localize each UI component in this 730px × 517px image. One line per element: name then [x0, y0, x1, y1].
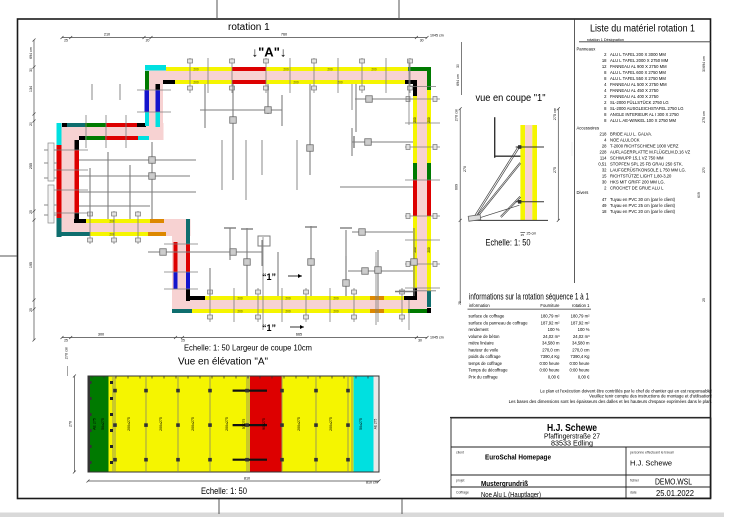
svg-text:30: 30	[456, 64, 460, 68]
svg-text:34,580 m: 34,580 m	[572, 341, 590, 346]
svg-text:20: 20	[29, 122, 33, 126]
svg-text:218: 218	[600, 131, 608, 136]
svg-text:Tuyau en PVC 30 cm (par le cli: Tuyau en PVC 30 cm (par le client)	[610, 197, 676, 202]
svg-text:0,00 €: 0,00 €	[578, 374, 590, 379]
svg-text:12: 12	[602, 64, 607, 69]
svg-text:180,79 m²: 180,79 m²	[541, 314, 560, 319]
svg-text:810: 810	[244, 477, 250, 481]
svg-text:Vue en élévation "A": Vue en élévation "A"	[178, 356, 268, 368]
svg-text:810 cm: 810 cm	[366, 481, 378, 485]
svg-text:Accessoires: Accessoires	[577, 125, 600, 130]
svg-text:609: 609	[455, 184, 459, 190]
svg-text:rotation 1: rotation 1	[228, 22, 270, 33]
svg-text:200x275: 200x275	[297, 417, 301, 431]
svg-text:Tuyau en PVC 25 cm (par le cli: Tuyau en PVC 25 cm (par le client)	[610, 203, 676, 208]
svg-text:ALU L AE-WINKEL 100 X 2750 MM: ALU L AE-WINKEL 100 X 2750 MM	[610, 118, 677, 123]
svg-text:volume de béton: volume de béton	[469, 334, 501, 339]
svg-text:Echelle: 1: 50: Echelle: 1: 50	[486, 238, 531, 248]
svg-text:30: 30	[420, 39, 424, 43]
svg-text:270 cm: 270 cm	[455, 109, 459, 121]
svg-text:200x275: 200x275	[329, 417, 333, 431]
svg-text:ANGLE INTERIEUR AL I 300 X 275: ANGLE INTERIEUR AL I 300 X 2750	[610, 112, 679, 117]
svg-text:18: 18	[602, 58, 607, 63]
svg-text:25: 25	[64, 339, 68, 343]
svg-text:0,00 €: 0,00 €	[548, 374, 560, 379]
svg-text:200: 200	[293, 81, 299, 85]
svg-text:0:00 heure: 0:00 heure	[569, 361, 590, 366]
svg-text:PANNEAU AL 900 X 2750 MM: PANNEAU AL 900 X 2750 MM	[610, 64, 667, 69]
svg-text:T-2000 RICHTSCHIENE 1000 VERZ: T-2000 RICHTSCHIENE 1000 VERZ	[610, 143, 679, 148]
svg-text:228: 228	[600, 149, 608, 154]
svg-text:Liste du matériel rotation 1: Liste du matériel rotation 1	[590, 23, 695, 34]
svg-text:NOE ALULOCK: NOE ALULOCK	[610, 137, 640, 142]
svg-text:134: 134	[29, 86, 33, 92]
svg-text:PANNEAU AL 450 X 2750: PANNEAU AL 450 X 2750	[610, 88, 659, 93]
svg-text:200: 200	[285, 310, 291, 314]
svg-text:32: 32	[602, 167, 607, 172]
svg-text:AE 275: AE 275	[93, 418, 97, 430]
svg-text:EuroSchal Homepage: EuroSchal Homepage	[485, 453, 551, 462]
svg-text:poids du coffrage: poids du coffrage	[469, 354, 502, 359]
svg-text:30: 30	[418, 339, 422, 343]
svg-text:surface de coffrage: surface de coffrage	[469, 314, 505, 319]
svg-text:50x275: 50x275	[242, 419, 246, 430]
svg-text:25: 25	[702, 298, 706, 302]
svg-text:200: 200	[371, 68, 377, 72]
svg-text:mètre linéaire: mètre linéaire	[469, 341, 495, 346]
svg-text:200: 200	[285, 297, 291, 301]
svg-text:AUFLAGERPLATTE M.FLÜGELM.D.16: AUFLAGERPLATTE M.FLÜGELM.D.16 VZ	[610, 149, 691, 154]
svg-text:760: 760	[281, 33, 287, 37]
svg-text:200: 200	[283, 68, 289, 72]
svg-text:665: 665	[296, 333, 302, 337]
svg-text:24,02 m³: 24,02 m³	[573, 334, 590, 339]
svg-text:200: 200	[237, 310, 243, 314]
svg-text:RICHTSTÜTZE LIGHT 1,80-3,20: RICHTSTÜTZE LIGHT 1,80-3,20	[610, 173, 672, 178]
svg-text:34,580 m: 34,580 m	[542, 341, 560, 346]
svg-text:ALU L TAFEL 600 X 2750 MM: ALU L TAFEL 600 X 2750 MM	[610, 70, 666, 75]
svg-text:STOPFEN SPL 25 FB GRAU 250 STK: STOPFEN SPL 25 FB GRAU 250 STK.	[610, 161, 683, 166]
svg-text:25.01.2022: 25.01.2022	[656, 489, 695, 498]
svg-text:Prix du coffrage: Prix du coffrage	[469, 374, 499, 379]
svg-text:0:00 heure: 0:00 heure	[539, 368, 560, 373]
svg-text:surface du panneau de coffrage: surface du panneau de coffrage	[469, 320, 529, 325]
svg-text:200x275: 200x275	[159, 417, 163, 431]
svg-text:50x275: 50x275	[359, 418, 363, 430]
svg-text:180,79 m²: 180,79 m²	[571, 314, 590, 319]
svg-text:275: 275	[553, 167, 557, 173]
svg-text:694 cm: 694 cm	[456, 74, 460, 86]
svg-text:195: 195	[29, 262, 33, 268]
svg-text:25: 25	[29, 210, 33, 214]
svg-text:25: 25	[64, 39, 68, 43]
svg-text:609: 609	[697, 192, 701, 198]
svg-text:275 cm: 275 cm	[553, 108, 557, 120]
svg-text:30: 30	[602, 179, 607, 184]
svg-text:rotation 1 Désignation: rotation 1 Désignation	[587, 38, 624, 42]
svg-text:49: 49	[602, 203, 607, 208]
svg-text:↓"A"↓: ↓"A"↓	[252, 45, 287, 60]
svg-text:50x275: 50x275	[101, 418, 105, 430]
svg-text:1045 cm: 1045 cm	[430, 336, 444, 340]
svg-text:270 cm: 270 cm	[65, 347, 69, 359]
svg-text:25: 25	[458, 301, 462, 305]
svg-text:25: 25	[29, 308, 33, 312]
svg-text:24,02 m³: 24,02 m³	[543, 334, 560, 339]
svg-text:SCHWUPP 15,1 VZ 750 MM: SCHWUPP 15,1 VZ 750 MM	[610, 155, 664, 160]
svg-text:H.J. Schewe: H.J. Schewe	[630, 459, 672, 468]
svg-text:83533 Edling: 83533 Edling	[551, 439, 593, 448]
svg-text:PANNEAU AL 400 X 2750: PANNEAU AL 400 X 2750	[610, 94, 659, 99]
svg-text:Echelle: 1: 50: Echelle: 1: 50	[201, 486, 247, 496]
svg-text:AE 275: AE 275	[374, 419, 378, 430]
svg-text:694 cm: 694 cm	[702, 56, 706, 68]
svg-text:270,0 cm: 270,0 cm	[572, 347, 590, 352]
svg-text:Les bases des dimensions sont: Les bases des dimensions sont les épaiss…	[509, 399, 712, 404]
svg-text:“1”: “1”	[262, 323, 276, 333]
svg-text:Temps de décoffrage: Temps de décoffrage	[469, 368, 509, 373]
svg-text:114: 114	[600, 155, 607, 160]
svg-text:Echelle: 1: 50 Largeur de co: Echelle: 1: 50 Largeur de coupe 10cm	[184, 343, 312, 353]
svg-text:200: 200	[333, 297, 339, 301]
svg-text:200x275: 200x275	[127, 417, 131, 431]
svg-text:7390,4 Kg: 7390,4 Kg	[570, 354, 590, 359]
svg-text:BRIDE ALU L. GALVA.: BRIDE ALU L. GALVA.	[610, 131, 652, 136]
svg-text:255: 255	[29, 163, 33, 169]
svg-text:20: 20	[146, 39, 150, 43]
svg-text:SL-2000 AUSGLEICHSTAFEL 2750 L: SL-2000 AUSGLEICHSTAFEL 2750 LG	[610, 106, 684, 111]
svg-text:28: 28	[602, 143, 607, 148]
svg-text:rendement: rendement	[469, 327, 490, 332]
svg-text:7390,4 Kg: 7390,4 Kg	[540, 354, 560, 359]
svg-text:200: 200	[413, 117, 417, 123]
svg-text:Mustergrundriß: Mustergrundriß	[481, 479, 528, 488]
svg-text:694 cm: 694 cm	[29, 47, 33, 59]
svg-text:210: 210	[104, 33, 110, 37]
svg-text:0:00 heure: 0:00 heure	[539, 361, 560, 366]
svg-text:DEMO.WSL: DEMO.WSL	[655, 478, 692, 487]
svg-text:187,92 m²: 187,92 m²	[541, 320, 560, 325]
svg-text:date: date	[630, 491, 637, 495]
svg-text:200x275: 200x275	[191, 417, 195, 431]
svg-text:270,0 cm: 270,0 cm	[542, 347, 560, 352]
svg-text:270 cm: 270 cm	[702, 111, 706, 123]
svg-text:200: 200	[333, 310, 339, 314]
svg-text:hauteur de voile: hauteur de voile	[469, 347, 499, 352]
svg-text:25: 25	[521, 233, 525, 237]
svg-text:270: 270	[69, 421, 73, 427]
svg-text:0:00 heure: 0:00 heure	[569, 368, 590, 373]
svg-text:personne effectuant le travail: personne effectuant le travail	[630, 451, 674, 455]
svg-text:200: 200	[327, 68, 333, 72]
svg-text:200x275: 200x275	[225, 417, 229, 431]
svg-text:fichier: fichier	[630, 479, 640, 483]
svg-text:270: 270	[463, 166, 467, 172]
svg-text:HKS MIT GRIFF 200 MM LG.: HKS MIT GRIFF 200 MM LG.	[610, 179, 665, 184]
svg-text:200: 200	[193, 68, 199, 72]
svg-text:SL-2000 FÜLLSTÜCK 2750 LG: SL-2000 FÜLLSTÜCK 2750 LG	[610, 100, 669, 105]
svg-text:CROCHET DE GRUE ALU L: CROCHET DE GRUE ALU L	[610, 185, 664, 190]
svg-text:“1”: “1”	[262, 272, 276, 282]
svg-text:Panneaux: Panneaux	[577, 47, 597, 52]
svg-text:client: client	[456, 451, 464, 455]
svg-text:1045 cm: 1045 cm	[430, 34, 444, 38]
svg-text:rotation 1: rotation 1	[572, 303, 590, 308]
svg-text:Veuillez tenir compte des inst: Veuillez tenir compte des instructions d…	[589, 394, 712, 399]
svg-text:Coffrage: Coffrage	[456, 491, 469, 495]
svg-text:200: 200	[193, 81, 199, 85]
svg-text:30: 30	[29, 68, 33, 72]
svg-text:0,51: 0,51	[598, 161, 607, 166]
svg-text:Noe Alu L (Hauptlager): Noe Alu L (Hauptlager)	[481, 492, 541, 499]
svg-text:informations sur la rotation: informations sur la rotation séquence 1 …	[469, 292, 589, 303]
svg-text:90x275: 90x275	[262, 418, 266, 430]
svg-text:projet: projet	[456, 479, 465, 483]
svg-text:270: 270	[702, 167, 706, 173]
svg-text:temps de coffrage: temps de coffrage	[469, 361, 503, 366]
svg-text:ALU L TAFEL 200 X 3000 MM: ALU L TAFEL 200 X 3000 MM	[610, 52, 666, 57]
svg-text:LAUFGERÜSTKONSOLE L 750 MM LG.: LAUFGERÜSTKONSOLE L 750 MM LG.	[610, 167, 686, 172]
svg-text:100 %: 100 %	[548, 327, 560, 332]
svg-text:PANNEAU AL 500 X 2750 MM: PANNEAU AL 500 X 2750 MM	[610, 82, 667, 87]
svg-text:ALU L TAFEL 2000 X 2750 MM: ALU L TAFEL 2000 X 2750 MM	[610, 58, 669, 63]
svg-text:25 cm: 25 cm	[527, 232, 537, 236]
svg-text:300: 300	[98, 333, 104, 337]
svg-text:information: information	[469, 303, 490, 308]
svg-text:100 %: 100 %	[578, 327, 590, 332]
svg-text:15: 15	[602, 173, 607, 178]
svg-text:200: 200	[427, 117, 431, 123]
svg-text:47: 47	[602, 197, 607, 202]
svg-text:Tuyau en PVC 20 cm (par le cli: Tuyau en PVC 20 cm (par le client)	[610, 209, 676, 214]
svg-text:200: 200	[427, 247, 431, 253]
svg-text:18: 18	[602, 209, 607, 214]
svg-text:vue en coupe "1": vue en coupe "1"	[476, 92, 546, 104]
svg-text:ALU L TAFEL 550 X 2750 MM: ALU L TAFEL 550 X 2750 MM	[610, 76, 666, 81]
svg-text:Fourniture: Fourniture	[540, 303, 560, 308]
svg-text:30: 30	[702, 68, 706, 72]
svg-text:187,92 m²: 187,92 m²	[571, 320, 590, 325]
svg-text:200: 200	[237, 297, 243, 301]
svg-text:Divers: Divers	[577, 190, 589, 195]
